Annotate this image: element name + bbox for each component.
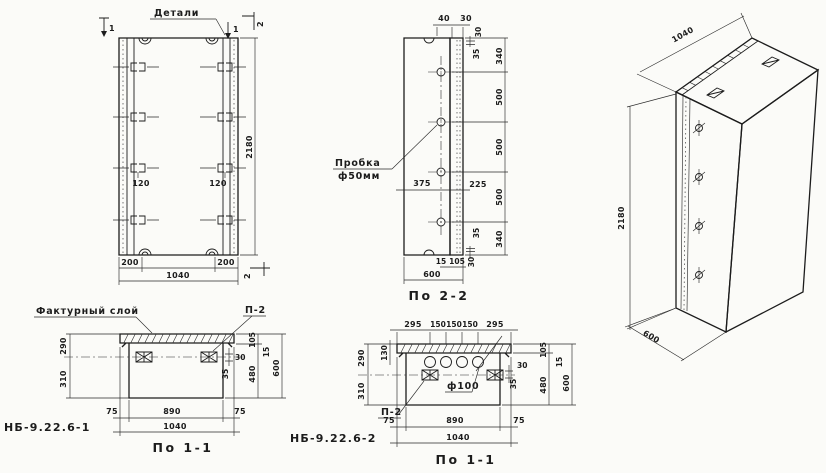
svg-text:1040: 1040 — [670, 25, 695, 44]
front-dim-ticks — [116, 35, 258, 284]
s1b-flange — [397, 344, 511, 357]
dim-s22-15: 15 — [436, 257, 446, 266]
dim-s22-40: 40 — [438, 14, 450, 23]
s22-edge-dim-bot — [466, 246, 475, 258]
iso-loop-recesses — [707, 57, 779, 98]
iso-dim-2180-line — [627, 94, 676, 330]
dim-s1b-295r: 295 — [486, 320, 504, 329]
iso-dim-1040-line — [637, 13, 752, 92]
iso-dim-600-line — [625, 308, 726, 361]
dim-s1b-1040: 1040 — [446, 433, 470, 442]
svg-text:35: 35 — [472, 49, 481, 59]
dim-s22-500b: 500 — [495, 138, 504, 156]
svg-text:340: 340 — [495, 230, 504, 248]
svg-text:600: 600 — [272, 359, 281, 377]
dim-s1a-290: 290 — [59, 337, 68, 355]
front-dim-ext — [119, 38, 258, 285]
dim-s1a-890: 890 — [163, 407, 181, 416]
dim-iso-height: 2180 — [617, 206, 626, 230]
dim-s1b-150a: 150 — [430, 320, 446, 329]
plug-label-line2: ф50мм — [338, 171, 380, 182]
svg-text:310: 310 — [59, 370, 68, 388]
drawing-canvas: 120 120 2180 200 200 1040 Детали 1 1 2 2… — [0, 0, 826, 473]
dim-front-width: 1040 — [166, 271, 190, 280]
section-mark-2-top-line — [242, 12, 254, 30]
svg-text:15: 15 — [555, 357, 564, 367]
s1a-flange — [120, 334, 234, 347]
iso-facing-speckle — [684, 97, 686, 310]
section-1-1-a-title: По 1-1 — [153, 440, 214, 455]
dim-s1b-30: 30 — [517, 361, 527, 370]
dim-s22-600: 600 — [423, 270, 441, 279]
svg-text:15: 15 — [262, 347, 271, 357]
dim-iso-width: 1040 — [670, 25, 695, 44]
section-1-1-b-view: 295 150 150 150 295 130 290 310 30 35 10… — [290, 320, 576, 467]
front-view: 120 120 2180 200 200 1040 Детали 1 1 2 2 — [99, 8, 270, 285]
s1b-top-dims — [390, 330, 518, 344]
dim-s22-225: 225 — [469, 180, 487, 189]
s1a-anchor-label: П-2 — [245, 305, 266, 316]
dim-s1a-480: 480 — [248, 365, 257, 383]
section-mark-2-bottom: 2 — [243, 273, 252, 279]
dim-s1b-480: 480 — [539, 376, 548, 394]
section-1-1-a-view: 290 310 30 35 105 15 480 600 75 890 75 1… — [4, 305, 286, 455]
svg-text:130: 130 — [380, 345, 389, 361]
iso-facing-joint — [681, 96, 690, 312]
svg-text:2180: 2180 — [245, 135, 254, 159]
dim-s1b-890: 890 — [446, 416, 464, 425]
s1b-voids — [425, 357, 484, 368]
dim-s1b-75r: 75 — [513, 416, 525, 425]
svg-text:480: 480 — [248, 365, 257, 383]
svg-text:2: 2 — [256, 21, 265, 27]
front-title-underline — [150, 19, 225, 35]
front-top-loops — [139, 38, 218, 44]
iso-holes — [693, 120, 705, 283]
s22-plug-axis — [428, 56, 455, 238]
section-1-1-b-title: По 1-1 — [436, 452, 497, 467]
section-mark-1-right: 1 — [233, 25, 239, 34]
s1a-flange-hatch — [124, 335, 233, 343]
svg-text:500: 500 — [495, 188, 504, 206]
dim-s1b-35: 35 — [509, 379, 518, 389]
front-dim-lines — [119, 38, 255, 281]
front-bottom-loops — [139, 249, 218, 255]
dim-s1b-600: 600 — [562, 374, 571, 392]
dim-s22-340b: 340 — [495, 230, 504, 248]
s1b-web — [406, 353, 500, 405]
svg-text:310: 310 — [357, 382, 366, 400]
plug-label-line1: Пробка — [335, 158, 381, 169]
svg-text:105: 105 — [248, 332, 257, 348]
section-mark-2-top: 2 — [256, 21, 265, 27]
front-panel-texture — [123, 40, 234, 253]
s22-notches — [424, 38, 434, 255]
dim-iso-depth: 600 — [641, 329, 661, 346]
svg-text:600: 600 — [562, 374, 571, 392]
dim-front-left-offset: 200 — [121, 258, 139, 267]
front-anchor-marks — [131, 63, 232, 224]
svg-text:2: 2 — [243, 273, 252, 279]
dim-s1b-310: 310 — [357, 382, 366, 400]
dim-s1b-150b: 150 — [446, 320, 462, 329]
svg-text:35: 35 — [472, 228, 481, 238]
s22-facing-strip — [450, 38, 463, 255]
dim-s1b-105: 105 — [539, 342, 548, 358]
dim-front-right-offset: 200 — [217, 258, 235, 267]
s1b-anchor-label: П-2 — [381, 407, 402, 418]
dim-s1a-105: 105 — [248, 332, 257, 348]
dim-s22-edge30b: 30 — [467, 257, 476, 267]
dim-s22-375: 375 — [413, 179, 431, 188]
svg-text:2180: 2180 — [617, 206, 626, 230]
dim-s22-340t: 340 — [495, 47, 504, 65]
section-mark-1-left: 1 — [109, 24, 115, 33]
dim-s1a-15: 15 — [262, 347, 271, 357]
dim-s1b-130: 130 — [380, 345, 389, 361]
svg-text:290: 290 — [357, 349, 366, 367]
section-mark-2-bottom-line — [250, 262, 270, 276]
s1b-flange-hatch — [401, 345, 510, 353]
dim-s1a-35: 35 — [221, 369, 230, 379]
s22-top-dim — [433, 25, 470, 38]
s1a-code: НБ-9.22.6-1 — [4, 421, 91, 434]
section-2-2-view: 40 30 30 35 340 500 500 500 340 35 30 37… — [333, 14, 508, 303]
dim-s1b-290: 290 — [357, 349, 366, 367]
dim-anchor-left: 120 — [132, 179, 150, 188]
dim-s22-30: 30 — [460, 14, 472, 23]
dim-s1b-15: 15 — [555, 357, 564, 367]
svg-text:290: 290 — [59, 337, 68, 355]
dim-s1a-1040: 1040 — [163, 422, 187, 431]
dim-s1a-310: 310 — [59, 370, 68, 388]
iso-left-face — [676, 92, 742, 332]
dim-s1a-75r: 75 — [234, 407, 246, 416]
dim-s22-105: 105 — [449, 257, 465, 266]
svg-text:30: 30 — [467, 257, 476, 267]
section-mark-1-left-arrow — [101, 31, 107, 37]
dim-s1a-75l: 75 — [106, 407, 118, 416]
s1b-code: НБ-9.22.6-2 — [290, 432, 377, 445]
facing-layer-leader — [34, 317, 152, 333]
s22-body — [404, 38, 450, 255]
dim-s22-edge35b: 35 — [472, 228, 481, 238]
iso-right-face — [726, 70, 818, 332]
svg-text:30: 30 — [474, 27, 483, 37]
svg-text:500: 500 — [495, 138, 504, 156]
dim-front-height: 2180 — [245, 135, 254, 159]
facing-layer-label: Фактурный слой — [36, 306, 139, 317]
dim-s1b-150c: 150 — [462, 320, 478, 329]
dim-s22-500a: 500 — [495, 88, 504, 106]
dim-s1b-295l: 295 — [404, 320, 422, 329]
iso-facing-hatch — [682, 45, 749, 91]
dim-s1a-600: 600 — [272, 359, 281, 377]
svg-text:35: 35 — [221, 369, 230, 379]
s1a-web — [129, 343, 223, 398]
svg-text:105: 105 — [539, 342, 548, 358]
svg-text:35: 35 — [509, 379, 518, 389]
dim-s22-500c: 500 — [495, 188, 504, 206]
svg-text:340: 340 — [495, 47, 504, 65]
dim-s22-edge35t: 35 — [472, 49, 481, 59]
iso-top-face — [676, 38, 818, 124]
section-2-2-title: По 2-2 — [409, 288, 470, 303]
front-anchor-axes — [113, 67, 246, 220]
svg-text:600: 600 — [641, 329, 661, 346]
svg-text:500: 500 — [495, 88, 504, 106]
iso-facing-band — [676, 38, 758, 95]
isometric-view: 1040 2180 600 — [617, 13, 818, 363]
dim-s1a-30: 30 — [235, 353, 245, 362]
front-view-title: Детали — [154, 8, 199, 19]
dim-s22-edge30t: 30 — [474, 27, 483, 37]
blueprint-sheet: 120 120 2180 200 200 1040 Детали 1 1 2 2… — [0, 0, 826, 473]
svg-text:480: 480 — [539, 376, 548, 394]
section-mark-1-left-line — [99, 18, 109, 32]
s1a-edge-dims — [225, 348, 233, 366]
dim-anchor-right: 120 — [209, 179, 227, 188]
